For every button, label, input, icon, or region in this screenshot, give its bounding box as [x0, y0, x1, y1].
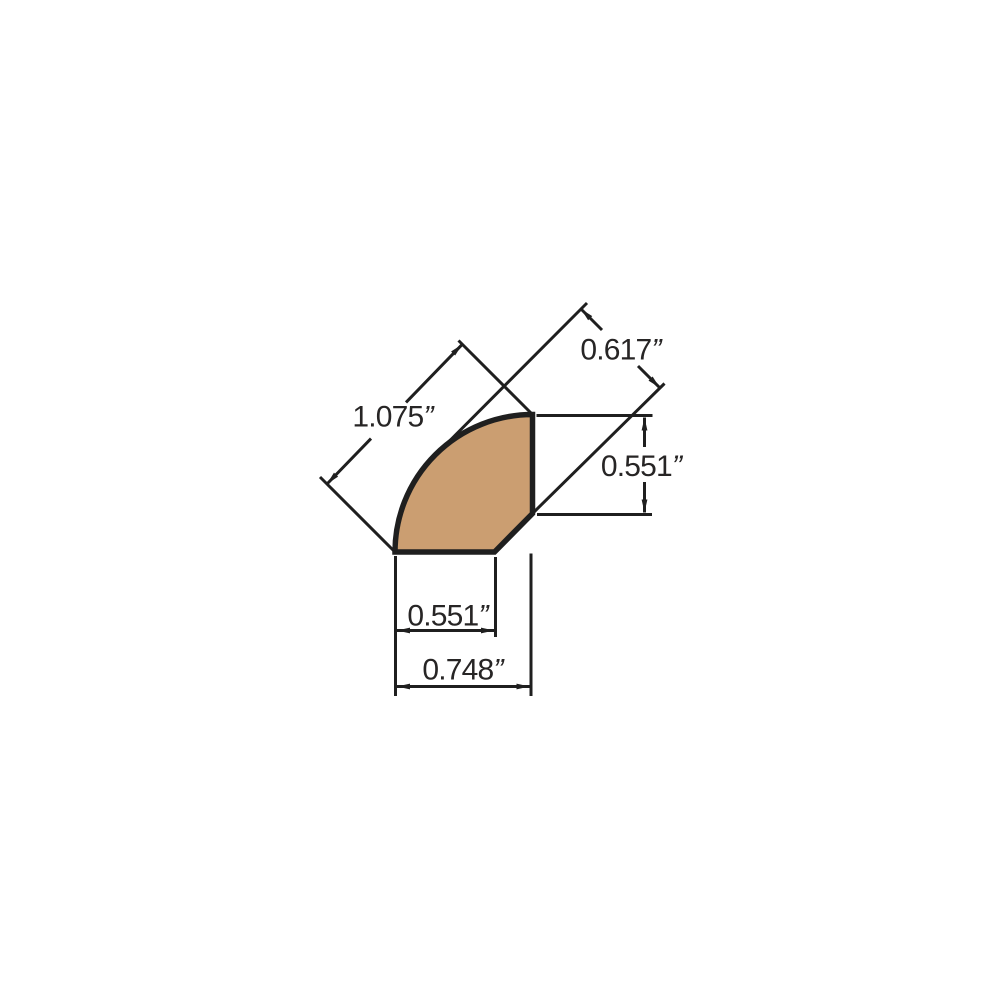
- svg-text:0.551”: 0.551”: [601, 450, 684, 483]
- svg-text:0.617”: 0.617”: [580, 334, 663, 367]
- svg-text:1.075”: 1.075”: [352, 401, 435, 434]
- svg-text:0.748”: 0.748”: [422, 654, 505, 687]
- svg-text:0.551”: 0.551”: [407, 600, 490, 633]
